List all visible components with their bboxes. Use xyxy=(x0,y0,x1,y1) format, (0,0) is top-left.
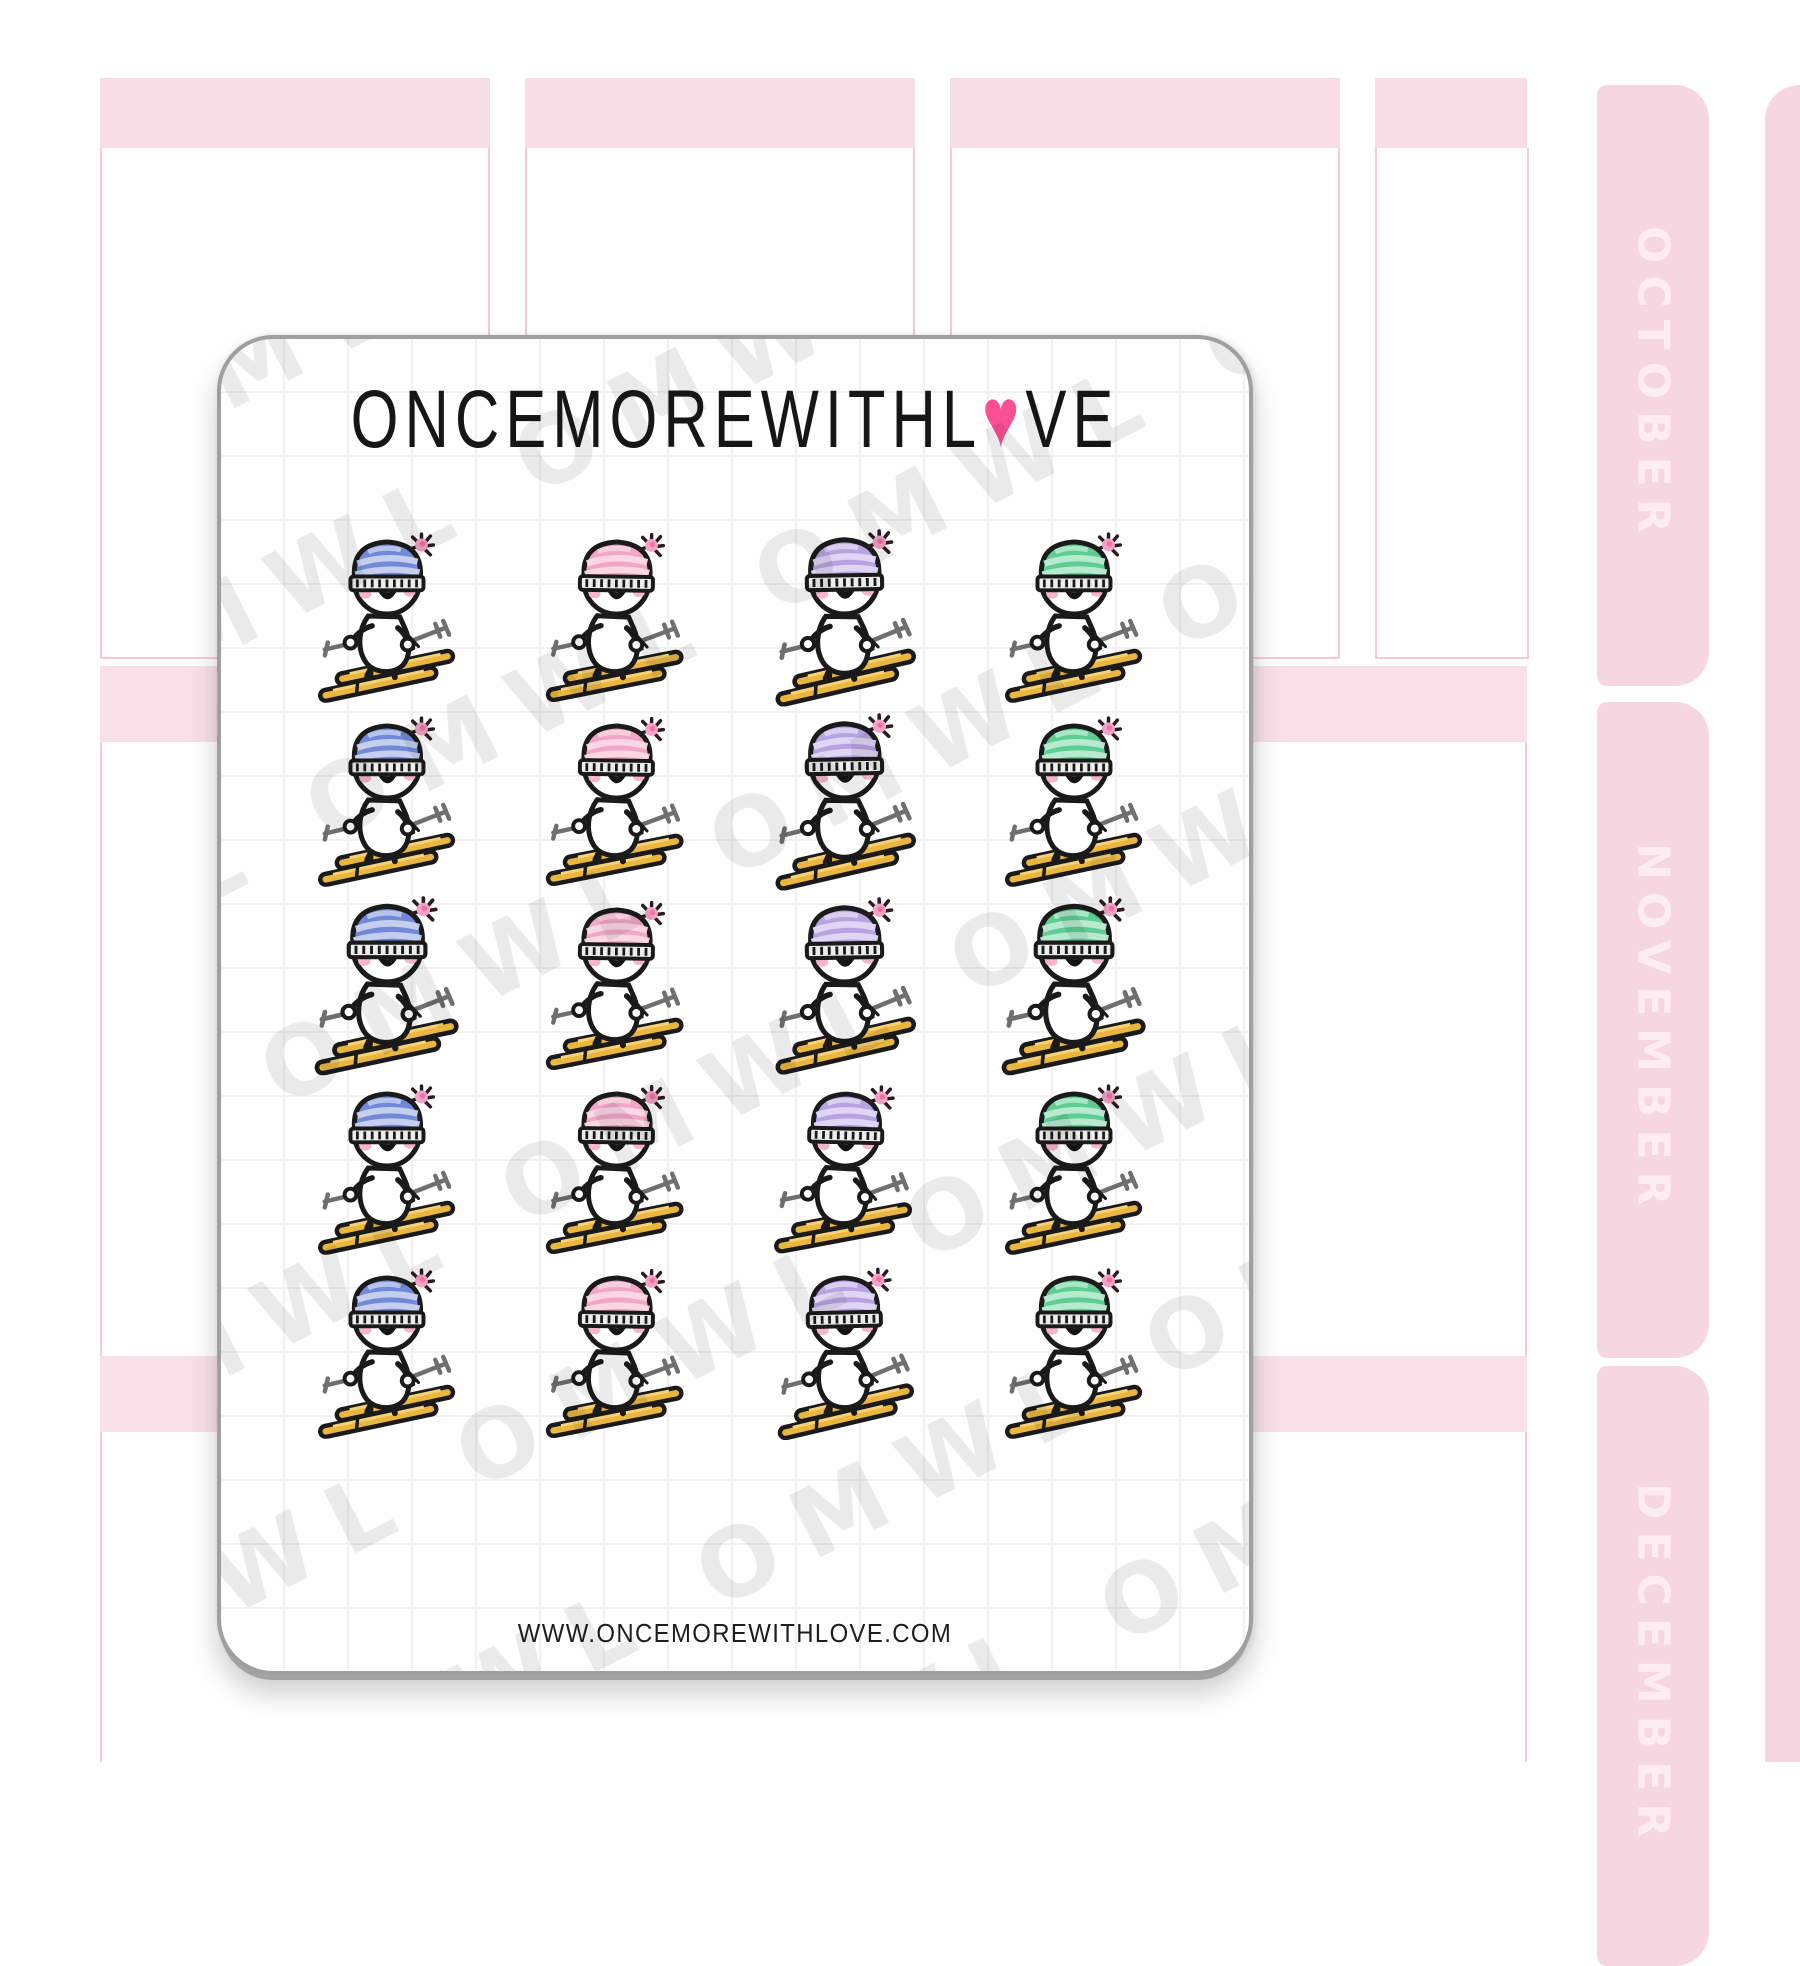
heart-icon: ♥ xyxy=(982,376,1025,460)
skier-sticker-green xyxy=(1010,709,1135,875)
brand-title-pre: ONCEMOREWITHL xyxy=(351,373,983,467)
planner-grid-line xyxy=(100,742,102,1356)
skier-sticker-pink xyxy=(552,1077,677,1243)
month-tab-november: NOVEMBER xyxy=(1597,702,1709,1358)
skier-sticker-pink xyxy=(552,1261,677,1427)
skier-sticker-blue xyxy=(323,525,448,691)
skier-sticker-purple xyxy=(781,893,906,1059)
footer-url: WWW.ONCEMOREWITHLOVE.COM xyxy=(262,1618,1208,1649)
skier-sticker-green xyxy=(1010,1077,1135,1243)
skier-sticker-pink xyxy=(552,709,677,875)
planner-grid-line xyxy=(1525,1432,1527,1762)
month-tab-december: DECEMBER xyxy=(1597,1366,1709,1966)
skier-sticker-purple xyxy=(781,1261,906,1427)
skier-sticker-green xyxy=(1010,525,1135,691)
planner-grid-line xyxy=(1525,742,1527,1356)
skier-sticker-blue xyxy=(323,1261,448,1427)
planner-column-header xyxy=(525,78,915,148)
month-tab-label: NOVEMBER xyxy=(1628,843,1679,1217)
skier-sticker-pink xyxy=(552,893,677,1059)
sticker-grid xyxy=(323,525,1135,1427)
skier-sticker-blue xyxy=(323,893,448,1059)
skier-sticker-green xyxy=(1010,1261,1135,1427)
skier-sticker-green xyxy=(1010,893,1135,1059)
page-edge-tab-sliver xyxy=(1765,85,1800,1762)
planner-column-header xyxy=(950,78,1340,148)
skier-sticker-purple xyxy=(781,525,906,691)
skier-sticker-purple xyxy=(781,709,906,875)
skier-sticker-pink xyxy=(552,525,677,691)
planner-grid-line xyxy=(100,1432,102,1762)
sticker-sheet: ONCEMOREWITHL♥VE WWW.ONCEMOREWITHLOVE.CO… xyxy=(217,335,1253,1675)
month-tab-october: OCTOBER xyxy=(1597,85,1709,686)
planner-column-header xyxy=(100,78,490,148)
month-tab-label: DECEMBER xyxy=(1628,1483,1679,1849)
skier-sticker-blue xyxy=(323,709,448,875)
month-tab-label: OCTOBER xyxy=(1628,226,1679,545)
planner-column-header xyxy=(1375,78,1527,148)
skier-sticker-purple xyxy=(781,1077,906,1243)
skier-sticker-blue xyxy=(323,1077,448,1243)
planner-box xyxy=(1375,148,1529,659)
brand-title-post: VE xyxy=(1025,373,1119,467)
product-image: { "planner": { "header_color": "#f8dce6"… xyxy=(0,0,1800,1762)
brand-title: ONCEMOREWITHL♥VE xyxy=(350,365,1121,475)
